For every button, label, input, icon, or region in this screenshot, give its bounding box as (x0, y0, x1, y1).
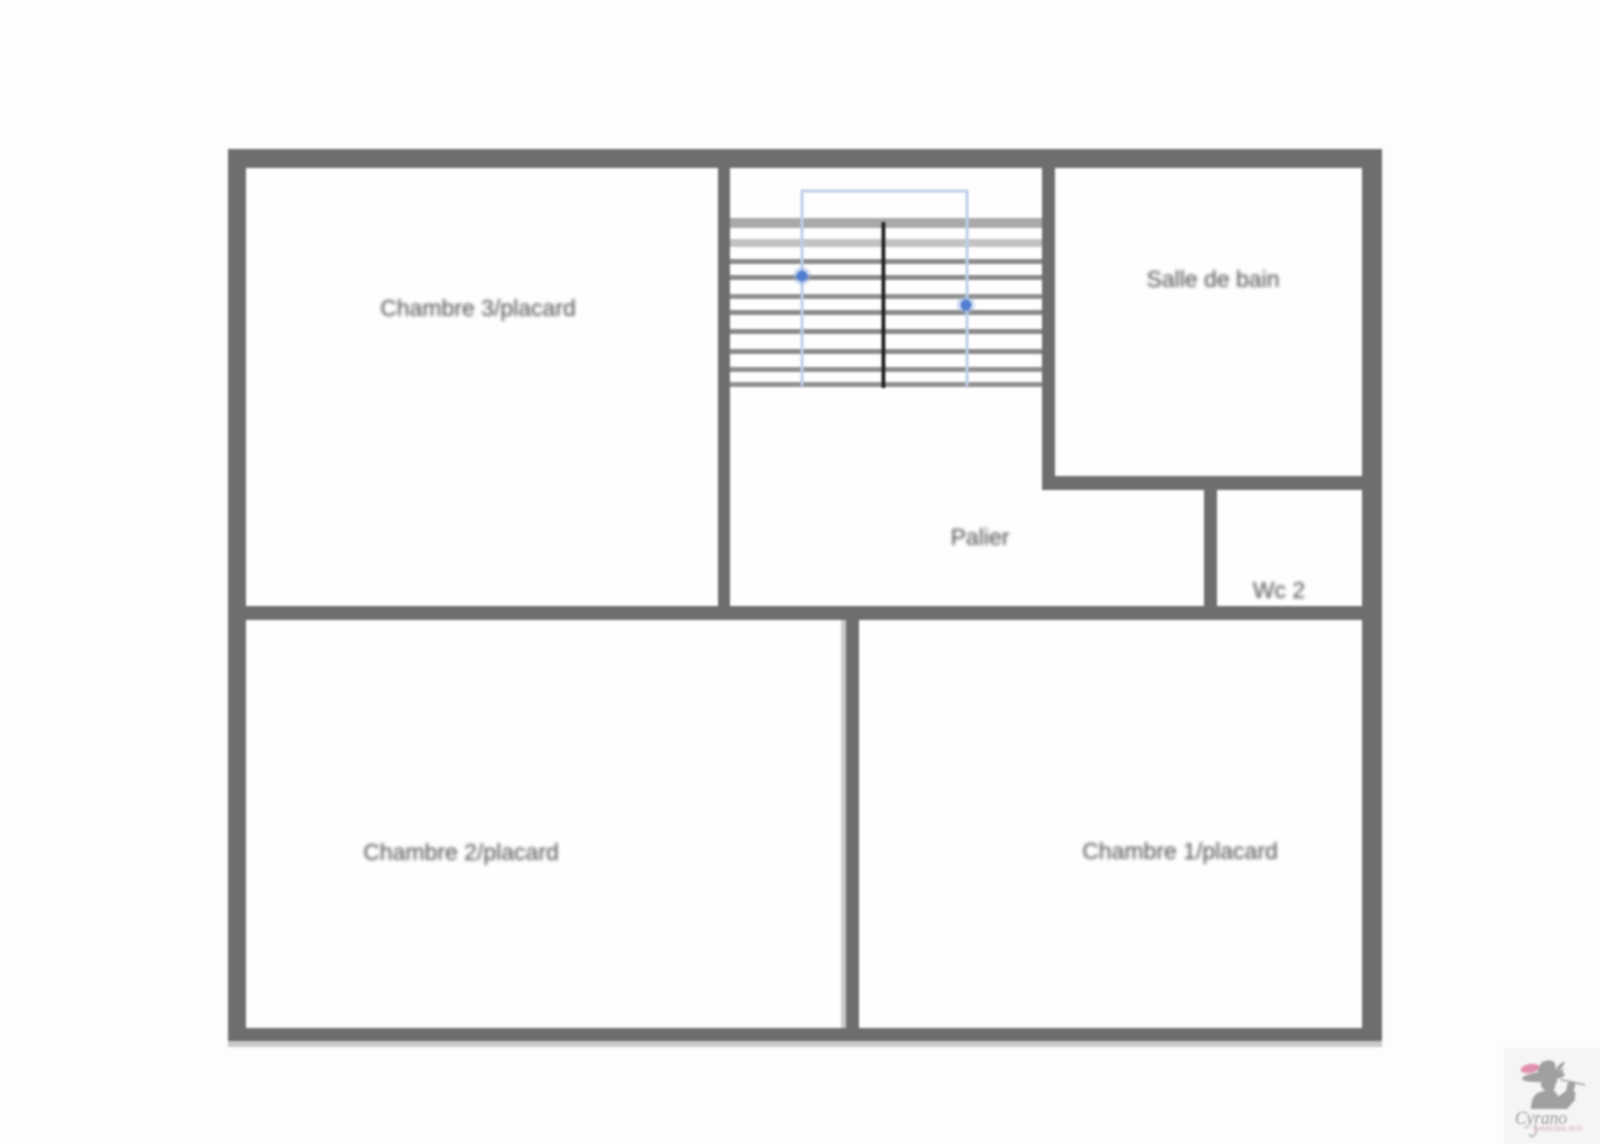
svg-text:Palier: Palier (951, 524, 1010, 550)
svg-text:Chambre 2/placard: Chambre 2/placard (363, 839, 559, 865)
svg-text:Chambre 3/placard: Chambre 3/placard (380, 295, 576, 321)
svg-text:Wc 2: Wc 2 (1253, 577, 1305, 603)
svg-text:Chambre 1/placard: Chambre 1/placard (1082, 838, 1278, 864)
svg-text:Salle de bain: Salle de bain (1147, 266, 1280, 292)
